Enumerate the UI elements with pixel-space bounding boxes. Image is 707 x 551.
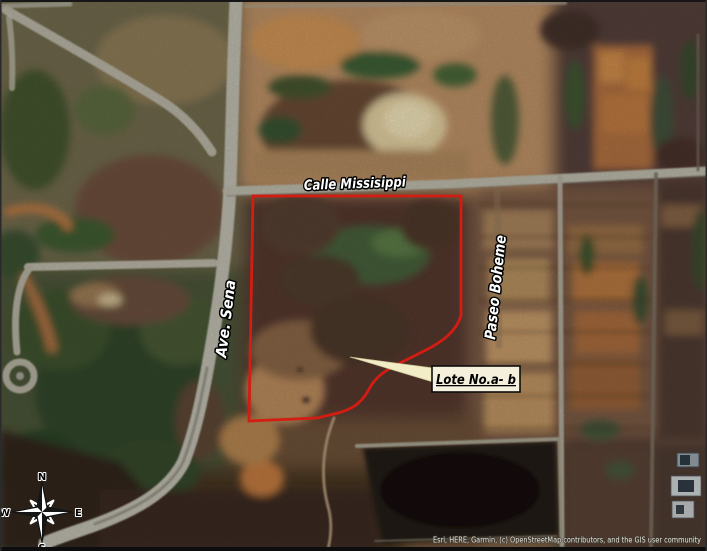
grain-overlay <box>0 0 707 551</box>
compass-label-n: N <box>38 472 46 483</box>
parcel-label: Lote No.a- b <box>436 373 516 388</box>
map-figure: Lote No.a- b Calle Missisippi Ave. Sena … <box>0 0 707 551</box>
satellite-map: Lote No.a- b Calle Missisippi Ave. Sena … <box>0 0 707 551</box>
compass-label-e: E <box>75 508 82 519</box>
map-attribution: Esri, HERE, Garmin, (c) OpenStreetMap co… <box>433 536 701 545</box>
